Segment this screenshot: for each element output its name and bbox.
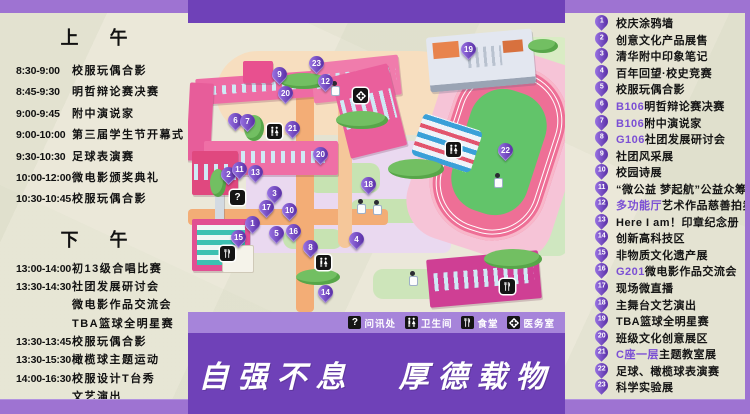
canteen-map-marker bbox=[500, 279, 515, 294]
schedule-row: 14:00-16:30 校服设计T台秀 bbox=[16, 370, 188, 388]
schedule-event: 足球表演赛 bbox=[72, 148, 135, 164]
restroom-icon bbox=[269, 126, 280, 137]
schedule-time: 10:30-10:45 bbox=[16, 193, 72, 205]
frame-strip-top-left bbox=[0, 0, 188, 13]
schedule-row: 10:30-10:45 校服玩偶合影 bbox=[16, 190, 188, 211]
question-icon-box: ? bbox=[348, 316, 361, 329]
question-icon: ? bbox=[234, 193, 240, 203]
student-figure bbox=[372, 200, 381, 213]
schedule-row: 微电影作品交流会 bbox=[16, 296, 188, 314]
legend-pin-icon: 3 bbox=[592, 46, 610, 64]
schedule-row: TBA篮球全明星赛 bbox=[16, 315, 188, 333]
map-pin-4: 4 bbox=[345, 228, 366, 249]
medical-icon bbox=[355, 90, 367, 102]
legend-label: 班级文化创意展区 bbox=[616, 330, 708, 346]
facility-legend-label: 卫生间 bbox=[421, 316, 453, 330]
legend-pin-icon: 15 bbox=[592, 244, 610, 262]
schedule-row: 10:00-12:00 微电影颁奖典礼 bbox=[16, 169, 188, 190]
map-pin-7: 7 bbox=[236, 110, 257, 131]
legend-label: G201微电影作品交流会 bbox=[616, 263, 737, 279]
schedule-event: TBA篮球全明星赛 bbox=[72, 315, 174, 331]
facility-legend-item: ? 问讯处 bbox=[348, 316, 396, 330]
legend-item: 11 “微公益 梦起航”公益众筹 bbox=[595, 180, 740, 197]
frame-strip-bottom-right bbox=[565, 399, 750, 414]
schedule-event: 第三届学生节开幕式 bbox=[72, 126, 185, 142]
legend-label: 创意文化产品展售 bbox=[616, 32, 708, 48]
legend-label: 足球、橄榄球表演赛 bbox=[616, 363, 720, 379]
legend-item: 4 百年回望·校史竞赛 bbox=[595, 65, 740, 82]
schedule-row: 13:30-15:30 橄榄球主题运动 bbox=[16, 351, 188, 369]
map-pin-5: 5 bbox=[265, 222, 286, 243]
map-pin-10: 10 bbox=[278, 199, 299, 220]
schedule-row: 8:30-9:00 校服玩偶合影 bbox=[16, 62, 188, 83]
canteen-icon bbox=[502, 281, 513, 292]
map-pin-11: 11 bbox=[228, 158, 249, 179]
legend-pin-icon: 18 bbox=[592, 294, 610, 312]
legend-label: 现场微直播 bbox=[616, 280, 674, 296]
legend-pin-icon: 22 bbox=[592, 360, 610, 378]
schedule-time: 9:30-10:30 bbox=[16, 151, 72, 163]
legend-item: 15 非物质文化遗产展 bbox=[595, 247, 740, 264]
restroom-icon bbox=[406, 317, 417, 328]
canteen-map-marker bbox=[220, 246, 235, 261]
schedule-row: 8:45-9:30 明哲辩论赛决赛 bbox=[16, 83, 188, 104]
legend-room-prefix: B106 bbox=[616, 101, 644, 113]
map-pin-14: 14 bbox=[314, 281, 335, 302]
schedule-time: 13:30-14:30 bbox=[16, 281, 72, 293]
map-pin-20: 20 bbox=[274, 82, 295, 103]
legend-item: 10 校园诗展 bbox=[595, 164, 740, 181]
frame-strip-right-edge bbox=[745, 0, 750, 414]
motto-left: 自强不息 bbox=[199, 352, 355, 396]
legend-pin-icon: 1 bbox=[592, 13, 610, 31]
canteen-icon bbox=[222, 248, 233, 259]
schedule-time: 9:00-9:45 bbox=[16, 108, 72, 120]
legend-item: 2 创意文化产品展售 bbox=[595, 32, 740, 49]
schedule-event: 初13级合唱比赛 bbox=[72, 260, 162, 276]
map-pin-8: 8 bbox=[299, 236, 320, 257]
legend-item: 9 社团风采展 bbox=[595, 147, 740, 164]
legend-pin-icon: 6 bbox=[592, 95, 610, 113]
medical-map-marker bbox=[353, 88, 368, 103]
facility-legend-label: 问讯处 bbox=[364, 316, 396, 330]
student-figure bbox=[356, 199, 365, 212]
student-festival-poster: 上 午 8:30-9:00 校服玩偶合影 8:45-9:30 明哲辩论赛决赛 9… bbox=[0, 0, 750, 414]
legend-label: G106社团发展研讨会 bbox=[616, 131, 725, 147]
legend-label: C座一层主题教室展 bbox=[616, 346, 716, 362]
legend-item: 3 清华附中印象笔记 bbox=[595, 48, 740, 65]
student-figure bbox=[408, 271, 417, 284]
restroom-icon bbox=[318, 257, 329, 268]
schedule-time: 13:30-13:45 bbox=[16, 336, 72, 348]
facility-legend-label: 食堂 bbox=[477, 316, 498, 330]
legend-item: 16 G201微电影作品交流会 bbox=[595, 263, 740, 280]
legend-label: 多功能厅艺术作品慈善拍卖 bbox=[616, 197, 750, 213]
question-map-marker: ? bbox=[230, 190, 245, 205]
legend-pin-icon: 13 bbox=[592, 211, 610, 229]
legend-room-prefix: B106 bbox=[616, 118, 644, 130]
facility-legend-item: 医务室 bbox=[507, 316, 555, 330]
legend-label: “微公益 梦起航”公益众筹 bbox=[616, 181, 747, 197]
medical-icon-box bbox=[507, 316, 520, 329]
legend-pin-icon: 14 bbox=[592, 228, 610, 246]
legend-room-prefix: C座一层 bbox=[616, 349, 659, 361]
legend-item: 20 班级文化创意展区 bbox=[595, 329, 740, 346]
legend-item: 17 现场微直播 bbox=[595, 280, 740, 297]
schedule-time: 13:00-14:00 bbox=[16, 263, 72, 275]
legend-item: 7 B106附中演说家 bbox=[595, 114, 740, 131]
legend-pin-icon: 9 bbox=[592, 145, 610, 163]
legend-item: 23 科学实验展 bbox=[595, 379, 740, 396]
question-icon: ? bbox=[352, 318, 358, 328]
legend-pin-icon: 21 bbox=[592, 344, 610, 362]
legend-item: 19 TBA篮球全明星赛 bbox=[595, 313, 740, 330]
tree bbox=[296, 269, 340, 285]
legend-pin-icon: 10 bbox=[592, 161, 610, 179]
map-pin-9: 9 bbox=[268, 63, 289, 84]
frame-strip-bottom-left bbox=[0, 399, 188, 414]
map-pin-23: 23 bbox=[305, 52, 326, 73]
legend-label: B106附中演说家 bbox=[616, 115, 702, 131]
legend-pin-icon: 5 bbox=[592, 79, 610, 97]
schedule-panel: 上 午 8:30-9:00 校服玩偶合影 8:45-9:30 明哲辩论赛决赛 9… bbox=[0, 0, 188, 414]
tree bbox=[528, 39, 558, 53]
map-pin-13: 13 bbox=[244, 161, 265, 182]
schedule-event: 校服玩偶合影 bbox=[72, 333, 147, 349]
map-pin-21: 21 bbox=[281, 117, 302, 138]
legend-item: 14 创新高科技区 bbox=[595, 230, 740, 247]
canteen-icon-box bbox=[461, 316, 474, 329]
legend-pin-icon: 11 bbox=[592, 178, 610, 196]
campus-map-panel: ?123456789101112131415161718192020212223… bbox=[188, 0, 565, 414]
tree bbox=[388, 159, 444, 179]
legend-pin-icon: 16 bbox=[592, 261, 610, 279]
map-pin-16: 16 bbox=[282, 220, 303, 241]
legend-label: 百年回望·校史竞赛 bbox=[616, 65, 712, 81]
afternoon-schedule: 13:00-14:00 初13级合唱比赛 13:30-14:30 社团发展研讨会… bbox=[0, 260, 188, 414]
legend-room-prefix: 多功能厅 bbox=[616, 200, 662, 212]
afternoon-title: 下 午 bbox=[0, 226, 188, 252]
legend-item: 13 Here I am！印章纪念册 bbox=[595, 214, 740, 231]
legend-panel: 1 校庆涂鸦墙 2 创意文化产品展售 3 清华附中印象笔记 4 百年回望·校史竞… bbox=[565, 0, 750, 414]
student-figure bbox=[493, 173, 502, 186]
schedule-time: 8:30-9:00 bbox=[16, 65, 72, 77]
legend-pin-icon: 4 bbox=[592, 62, 610, 80]
map-header-band bbox=[188, 0, 565, 23]
facility-legend-item: 食堂 bbox=[461, 316, 498, 330]
legend-pin-icon: 23 bbox=[592, 377, 610, 395]
restroom-map-marker bbox=[267, 124, 282, 139]
morning-schedule: 8:30-9:00 校服玩偶合影 8:45-9:30 明哲辩论赛决赛 9:00-… bbox=[0, 62, 188, 212]
schedule-event: 校服设计T台秀 bbox=[72, 370, 155, 386]
canteen-icon bbox=[462, 317, 473, 328]
restroom-map-marker bbox=[316, 255, 331, 270]
facility-legend-item: 卫生间 bbox=[405, 316, 453, 330]
motto-banner: 自强不息 厚德载物 bbox=[188, 333, 565, 414]
legend-label: 校庆涂鸦墙 bbox=[616, 15, 674, 31]
map-pin-17: 17 bbox=[255, 196, 276, 217]
schedule-event: 校服玩偶合影 bbox=[72, 62, 147, 78]
legend-pin-icon: 12 bbox=[592, 195, 610, 213]
schedule-time: 8:45-9:30 bbox=[16, 86, 72, 98]
gym-roof-patch bbox=[432, 41, 459, 59]
map-pin-12: 12 bbox=[314, 70, 335, 91]
gym-roof-patch bbox=[502, 39, 523, 53]
morning-title: 上 午 bbox=[0, 24, 188, 50]
legend-label: 创新高科技区 bbox=[616, 230, 685, 246]
schedule-event: 社团发展研讨会 bbox=[72, 278, 160, 294]
restroom-map-marker bbox=[446, 142, 461, 157]
legend-item: 21 C座一层主题教室展 bbox=[595, 346, 740, 363]
legend-pin-icon: 20 bbox=[592, 327, 610, 345]
tree bbox=[484, 249, 542, 269]
legend-list: 1 校庆涂鸦墙 2 创意文化产品展售 3 清华附中印象笔记 4 百年回望·校史竞… bbox=[595, 15, 740, 396]
legend-label: TBA篮球全明星赛 bbox=[616, 313, 709, 329]
facility-legend-strip: ? 问讯处 卫生间 食堂 医务室 bbox=[188, 312, 565, 333]
map-pin-15: 15 bbox=[227, 226, 248, 247]
legend-label: 清华附中印象笔记 bbox=[616, 48, 708, 64]
legend-label: 校园诗展 bbox=[616, 164, 662, 180]
schedule-row: 13:30-14:30 社团发展研讨会 bbox=[16, 278, 188, 296]
map-pin-19: 19 bbox=[457, 38, 478, 59]
schedule-time: 14:00-16:30 bbox=[16, 373, 72, 385]
campus-map: ?123456789101112131415161718192020212223 bbox=[188, 23, 565, 312]
gymnasium-building bbox=[426, 28, 536, 92]
facility-legend-label: 医务室 bbox=[523, 316, 555, 330]
legend-item: 5 校服玩偶合影 bbox=[595, 81, 740, 98]
medical-icon bbox=[508, 317, 520, 329]
legend-item: 1 校庆涂鸦墙 bbox=[595, 15, 740, 32]
small-rooftop bbox=[243, 61, 273, 83]
schedule-event: 附中演说家 bbox=[72, 105, 135, 121]
legend-item: 12 多功能厅艺术作品慈善拍卖 bbox=[595, 197, 740, 214]
legend-item: 6 B106明哲辩论赛决赛 bbox=[595, 98, 740, 115]
schedule-row: 9:00-10:00 第三届学生节开幕式 bbox=[16, 126, 188, 147]
legend-pin-icon: 8 bbox=[592, 128, 610, 146]
map-pin-20: 20 bbox=[309, 143, 330, 164]
schedule-event: 校服玩偶合影 bbox=[72, 190, 147, 206]
schedule-row: 9:00-9:45 附中演说家 bbox=[16, 105, 188, 126]
legend-label: 社团风采展 bbox=[616, 148, 674, 164]
legend-label: 校服玩偶合影 bbox=[616, 81, 685, 97]
schedule-time: 10:00-12:00 bbox=[16, 172, 72, 184]
restroom-icon bbox=[448, 144, 459, 155]
legend-room-prefix: G106 bbox=[616, 134, 645, 146]
schedule-event: 微电影作品交流会 bbox=[72, 296, 172, 312]
schedule-time: 9:00-10:00 bbox=[16, 129, 72, 141]
legend-label: 主舞台文艺演出 bbox=[616, 297, 697, 313]
legend-pin-icon: 17 bbox=[592, 277, 610, 295]
legend-pin-icon: 2 bbox=[592, 29, 610, 47]
restroom-icon-box bbox=[405, 316, 418, 329]
legend-label: 非物质文化遗产展 bbox=[616, 247, 708, 263]
schedule-row: 13:30-13:45 校服玩偶合影 bbox=[16, 333, 188, 351]
legend-pin-icon: 7 bbox=[592, 112, 610, 130]
legend-item: 8 G106社团发展研讨会 bbox=[595, 131, 740, 148]
frame-strip-top-right bbox=[565, 0, 750, 13]
legend-item: 18 主舞台文艺演出 bbox=[595, 296, 740, 313]
motto-right: 厚德载物 bbox=[399, 352, 555, 396]
legend-label: B106明哲辩论赛决赛 bbox=[616, 98, 725, 114]
legend-pin-icon: 19 bbox=[592, 310, 610, 328]
legend-label: Here I am！印章纪念册 bbox=[616, 214, 739, 230]
schedule-event: 明哲辩论赛决赛 bbox=[72, 83, 160, 99]
legend-label: 科学实验展 bbox=[616, 379, 674, 395]
legend-item: 22 足球、橄榄球表演赛 bbox=[595, 362, 740, 379]
map-pin-22: 22 bbox=[494, 139, 515, 160]
map-pin-18: 18 bbox=[357, 173, 378, 194]
schedule-event: 橄榄球主题运动 bbox=[72, 351, 160, 367]
schedule-time: 13:30-15:30 bbox=[16, 354, 72, 366]
tree bbox=[336, 111, 388, 129]
schedule-event: 微电影颁奖典礼 bbox=[72, 169, 160, 185]
legend-room-prefix: G201 bbox=[616, 266, 645, 278]
schedule-row: 9:30-10:30 足球表演赛 bbox=[16, 148, 188, 169]
schedule-row: 13:00-14:00 初13级合唱比赛 bbox=[16, 260, 188, 278]
